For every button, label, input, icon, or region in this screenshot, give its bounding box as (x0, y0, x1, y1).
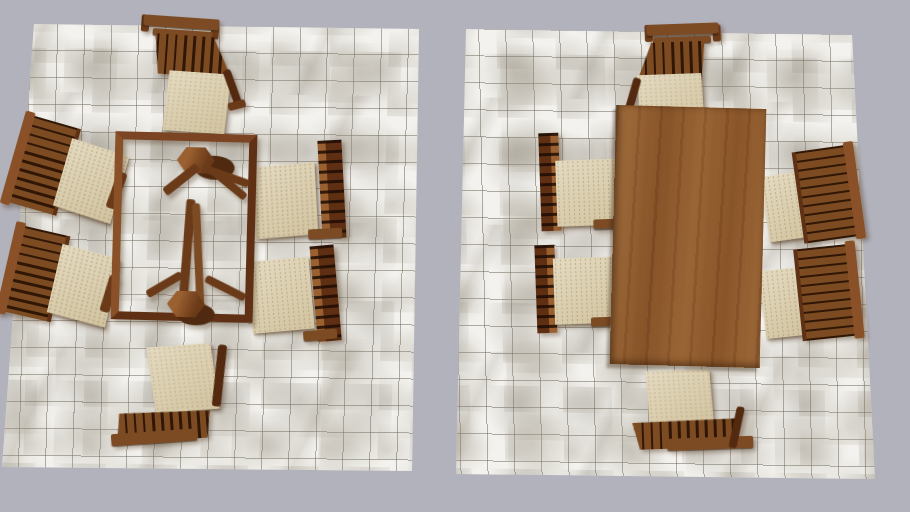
chair-foot-rail (308, 228, 342, 240)
right-set-chair-right-lower[interactable] (757, 241, 867, 349)
chair-top-rail (646, 22, 718, 36)
chair-back-ladder (317, 140, 346, 239)
left-set-chair-right-upper[interactable] (247, 138, 348, 247)
pedestal-leg (204, 275, 247, 302)
chair-seat-cushion (645, 369, 714, 425)
chair-bottom-rail (667, 436, 753, 451)
chair-back-slats (793, 243, 864, 341)
chair-seat-cushion (162, 70, 231, 134)
right-set-chair-right-upper[interactable] (758, 142, 869, 253)
chair-armrest (212, 344, 227, 407)
left-set-chair-top[interactable] (132, 6, 256, 138)
chair-seat-cushion (555, 159, 619, 227)
pedestal-leg (162, 163, 200, 196)
right-set-chair-left-upper[interactable] (536, 131, 622, 236)
left-set-chair-bottom[interactable] (101, 335, 242, 448)
trestle-table-frame[interactable] (111, 131, 258, 323)
chair-seat-cushion (147, 343, 220, 413)
left-set-chair-right-lower[interactable] (242, 242, 349, 356)
chair-seat-cushion (253, 162, 319, 239)
chair-back-slats (792, 144, 866, 244)
right-set-chair-left-lower[interactable] (532, 241, 619, 344)
chair-seat-cushion (553, 257, 617, 325)
wood-tabletop[interactable] (610, 105, 767, 368)
chair-leg (227, 99, 246, 111)
viewport-3d[interactable] (0, 0, 910, 512)
chair-seat-cushion (247, 257, 315, 334)
right-set-chair-bottom[interactable] (626, 360, 751, 458)
